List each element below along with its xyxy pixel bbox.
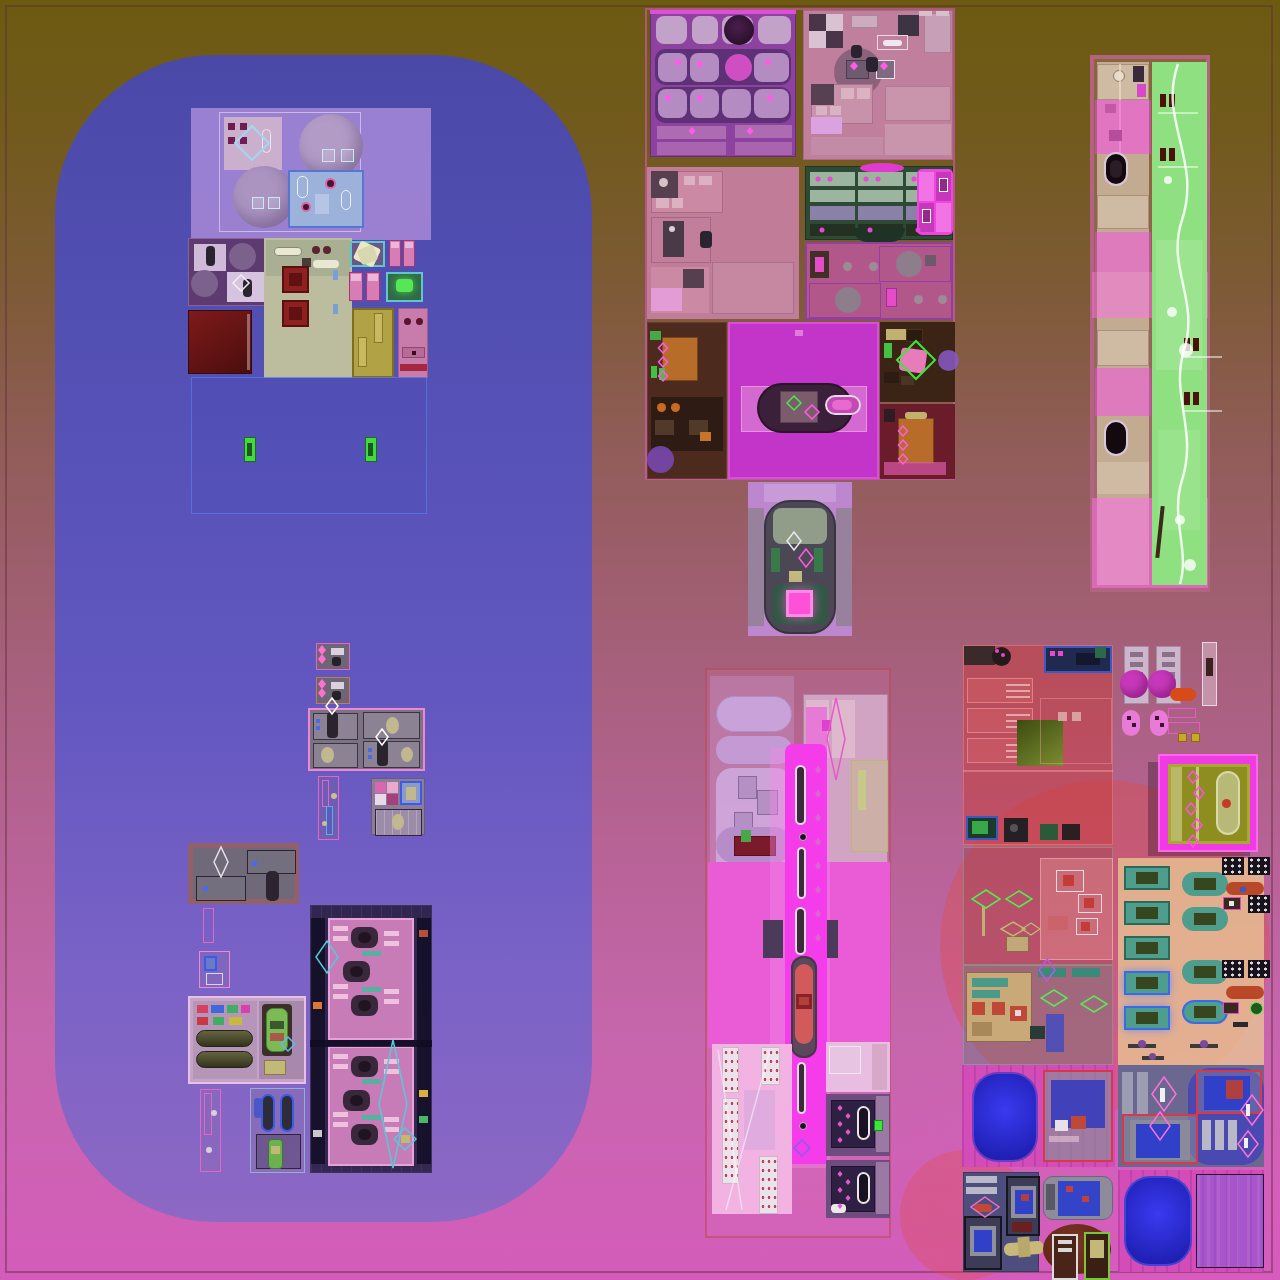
blue-runner: [1046, 1014, 1064, 1052]
locker-slot[interactable]: [280, 1094, 294, 1132]
blue-chip: [333, 270, 338, 280]
stall-table-pad: [358, 1061, 371, 1072]
console-oval: [857, 1172, 870, 1204]
table-dot: [240, 137, 247, 144]
teal-bar: [362, 1115, 381, 1120]
tub-table[interactable]: [780, 391, 818, 423]
blue-pool[interactable]: [1124, 1176, 1192, 1266]
dresser-bar: [358, 337, 367, 367]
counter-box: [816, 106, 827, 115]
sim-figure[interactable]: [327, 712, 338, 738]
red-module: [1226, 1080, 1243, 1099]
green-chip: [874, 1120, 883, 1131]
pool-wall: [1171, 767, 1182, 841]
dot-rack: [1248, 960, 1270, 978]
counter-pill: [313, 260, 339, 268]
counter-box: [857, 88, 870, 99]
table-dot: [240, 123, 247, 130]
shelf-bar: [735, 125, 792, 138]
lane-slot: [795, 765, 806, 825]
color-chip: [213, 1017, 224, 1025]
dark-item: [884, 409, 895, 422]
dot-rack: [1248, 857, 1270, 875]
chevron-bar: [333, 1054, 348, 1059]
red-chip: [1021, 1194, 1029, 1201]
magenta-chip: [822, 720, 831, 731]
white-button: [831, 1204, 846, 1213]
floor-lamp[interactable]: [869, 262, 878, 271]
bench-center: [1136, 977, 1158, 989]
module-knob: [659, 178, 668, 187]
blue-rug: [1058, 1181, 1100, 1216]
dark-module: [906, 329, 923, 342]
stove-burner: [289, 307, 302, 320]
cutlery-oval: [262, 129, 271, 153]
sim-figure[interactable]: [851, 45, 862, 58]
teal-chip: [1095, 647, 1106, 658]
plant-box: [650, 331, 661, 340]
seat-dot: [1127, 716, 1131, 720]
fixture-oval: [297, 176, 308, 198]
khaki-pad: [789, 571, 802, 582]
bench-center: [1194, 1006, 1216, 1018]
floor-lamp[interactable]: [843, 262, 852, 271]
drawer-slot: [1162, 652, 1175, 657]
pale-pill: [1215, 1120, 1224, 1150]
bench-center: [1194, 913, 1216, 925]
seat-dot: [1155, 716, 1159, 720]
red-module: [1071, 1116, 1086, 1129]
drawer-slot: [1130, 652, 1143, 657]
cabinet-cell[interactable]: [658, 53, 687, 82]
toilet-seat: [1110, 160, 1122, 178]
bottle-dark: [1169, 94, 1175, 107]
lane-dot: [799, 1122, 807, 1130]
seat-dot: [1132, 723, 1136, 727]
red-pill-s: [974, 1204, 992, 1212]
chevron-bar: [384, 1059, 399, 1064]
shelf-bar: [322, 780, 329, 807]
red-module: [1084, 898, 1094, 908]
nook-box: [1072, 712, 1081, 721]
blue-chip: [368, 748, 372, 752]
hairline: [1158, 112, 1198, 114]
white-pill: [883, 40, 902, 46]
pale-bar: [1137, 1072, 1148, 1114]
sim-figure[interactable]: [206, 246, 215, 266]
green-glow-blob: [396, 279, 413, 292]
bottle-dark: [1160, 94, 1166, 107]
tv-unit[interactable]: [898, 15, 919, 36]
pink-bed-small[interactable]: [899, 347, 928, 373]
counter-bar[interactable]: [858, 206, 903, 220]
pool-lane-line: [1196, 767, 1199, 841]
red-chip: [1066, 1186, 1073, 1192]
car-stripe: [270, 1033, 284, 1041]
capsule-booth[interactable]: [716, 696, 792, 732]
floor-lamp[interactable]: [914, 295, 923, 304]
nook-wall: [836, 508, 852, 626]
bottle-dark: [1184, 338, 1190, 351]
nook-box: [1058, 712, 1067, 721]
sink-semicircle: [853, 228, 905, 242]
sim-figure[interactable]: [332, 657, 341, 666]
sim-figure[interactable]: [700, 231, 712, 248]
dot-rack: [1248, 895, 1270, 913]
group-table[interactable]: [313, 743, 358, 768]
color-chip: [700, 432, 711, 441]
cabinet-cell[interactable]: [754, 89, 789, 118]
red-module: [992, 1002, 1005, 1015]
pill-dot: [1240, 887, 1246, 892]
shelf-bar-blue: [326, 806, 333, 835]
chevron-bar: [333, 994, 348, 999]
green-rail: [814, 548, 823, 572]
counter-bar-dark[interactable]: [810, 224, 855, 236]
bottle: [884, 343, 892, 358]
glow-square[interactable]: [786, 590, 813, 617]
chip-strip: [1049, 1136, 1079, 1142]
dresser-orange[interactable]: [898, 418, 934, 464]
pouf[interactable]: [938, 350, 959, 371]
table-dot: [228, 137, 235, 144]
bottle-dark: [1193, 392, 1199, 405]
white-unit[interactable]: [829, 1046, 861, 1074]
color-chip: [419, 930, 428, 937]
slot-column: [1046, 1184, 1055, 1210]
counter-bar[interactable]: [810, 172, 855, 186]
sim-figure[interactable]: [243, 279, 252, 297]
chevron-bar: [384, 1117, 399, 1122]
chip-row: [1048, 916, 1068, 930]
chevron-bar: [333, 1122, 348, 1127]
drawer-knob: [412, 351, 416, 355]
console-module: [655, 420, 674, 435]
red-module: [1063, 875, 1074, 886]
framed-module: [939, 178, 948, 192]
wall-shelf: [851, 15, 878, 28]
outline-bar: [1168, 708, 1196, 718]
cabinet-cell[interactable]: [690, 89, 719, 118]
mosaic-tile: [375, 782, 386, 793]
laundry-mat: [744, 1090, 775, 1150]
potting-table[interactable]: [1006, 936, 1029, 952]
color-chip: [227, 1005, 238, 1013]
counter-box: [830, 106, 841, 115]
checker-tile: [826, 31, 843, 48]
yellow-chip: [1191, 733, 1200, 742]
color-chip: [197, 1017, 208, 1025]
sim-figure[interactable]: [866, 57, 878, 72]
teal-bar: [362, 987, 381, 992]
arcade-bar: [1058, 1240, 1072, 1244]
blue-pool[interactable]: [972, 1072, 1038, 1162]
magenta-overlay: [1095, 100, 1151, 154]
magenta-slot: [815, 257, 824, 272]
bench-slot: [368, 443, 373, 456]
hatch-rack: [1006, 682, 1030, 698]
white-pill-s: [1244, 1138, 1248, 1148]
cabinet-cell[interactable]: [690, 53, 719, 82]
pink-seat-oval[interactable]: [1122, 710, 1140, 736]
cabinet-cell[interactable]: [656, 16, 687, 44]
dark-unit[interactable]: [1062, 824, 1080, 840]
chevron-bar: [384, 1127, 399, 1132]
arrow-chip: [1233, 1022, 1248, 1027]
teal-bar: [972, 978, 1008, 987]
stall-table-pad: [358, 1129, 371, 1140]
arcade-bar: [1058, 1248, 1072, 1252]
locker-slot[interactable]: [261, 1094, 275, 1132]
white-pill-s: [1160, 1088, 1165, 1102]
translucent-deck: [1196, 1174, 1264, 1268]
blue-chip: [203, 886, 208, 891]
round-table[interactable]: [299, 114, 363, 178]
fixture-dot[interactable]: [301, 202, 311, 212]
chair[interactable]: [268, 197, 280, 209]
cabinet-cell[interactable]: [754, 53, 789, 82]
loom-dot: [211, 1110, 217, 1116]
toilet[interactable]: [1104, 420, 1128, 456]
side-table[interactable]: [264, 1060, 286, 1075]
marker-target: [401, 1135, 410, 1143]
car-green[interactable]: [266, 1008, 288, 1052]
shelf-bar: [657, 142, 726, 155]
chair[interactable]: [322, 149, 335, 162]
chair[interactable]: [252, 197, 264, 209]
bottle-dark: [1184, 392, 1190, 405]
tub-slab[interactable]: [196, 1051, 253, 1068]
cabinet-cell[interactable]: [758, 16, 791, 44]
car-window: [271, 1146, 280, 1154]
seat-square: [925, 255, 936, 266]
blue-chip: [316, 719, 320, 723]
pink-seat-oval[interactable]: [1150, 710, 1168, 736]
open-floor: [885, 124, 951, 155]
stall-table-pad: [350, 1095, 363, 1106]
corner-module: [683, 269, 704, 288]
loom-dot: [206, 1147, 212, 1153]
cabinet-cell[interactable]: [658, 89, 687, 118]
game-overhead-map: [0, 0, 1280, 1280]
chevron-bar: [384, 931, 399, 936]
shelf-dot: [331, 793, 337, 799]
chevron-bar: [384, 999, 399, 1004]
burner-circle[interactable]: [992, 647, 1011, 666]
lane-slot: [797, 847, 806, 899]
magenta-frame-box: [1223, 1002, 1239, 1014]
color-chip: [211, 1005, 224, 1013]
tall-cabinet[interactable]: [832, 700, 855, 758]
table-dot: [228, 123, 235, 130]
blue-chip: [368, 755, 372, 759]
magenta-dot: [1058, 651, 1063, 656]
stall-table-pad: [358, 1000, 371, 1011]
counter-pill: [274, 247, 302, 256]
nook-wall: [748, 508, 764, 626]
dark-red-mat: [1012, 1222, 1032, 1232]
green-unit[interactable]: [1040, 824, 1058, 840]
patio-outline: [191, 377, 427, 514]
round-table-small[interactable]: [835, 287, 861, 313]
counter-box: [841, 88, 854, 99]
framed-seat[interactable]: [876, 60, 895, 79]
dark-item: [1030, 1026, 1045, 1039]
khaki-pill: [905, 412, 927, 419]
sim-figure[interactable]: [377, 740, 388, 766]
color-chip: [229, 1017, 242, 1025]
cabinet-cell-pink: [919, 172, 934, 201]
bench-center: [1194, 966, 1216, 978]
cabinet-cell[interactable]: [692, 16, 718, 44]
chevron-bar: [333, 1112, 348, 1117]
bottle-dark: [1206, 658, 1213, 676]
lane-slot: [797, 1062, 806, 1114]
blue-rug: [974, 1230, 992, 1252]
color-chip: [241, 1005, 250, 1013]
pink-runner: [884, 462, 946, 475]
green-ring: [1250, 1002, 1263, 1015]
chair[interactable]: [341, 149, 354, 162]
pale-bar-h: [966, 1187, 997, 1194]
ladder-table[interactable]: [759, 1156, 778, 1214]
tall-cabinet[interactable]: [924, 13, 951, 53]
dresser-orange[interactable]: [662, 337, 698, 381]
open-floor: [811, 137, 883, 155]
counter-box: [684, 176, 695, 185]
dresser-dot: [404, 318, 411, 325]
bottle-dark: [1193, 338, 1199, 351]
dot-rack: [1222, 857, 1244, 875]
stall-table-pad: [358, 932, 371, 943]
knob-orange: [657, 403, 666, 412]
dumbbell-dot: [1149, 1053, 1156, 1060]
counter-bar[interactable]: [810, 190, 855, 202]
dot-rack: [1222, 960, 1244, 978]
stove-black[interactable]: [964, 646, 995, 665]
red-module: [972, 1002, 985, 1015]
round-table-small[interactable]: [191, 270, 218, 297]
car-green[interactable]: [268, 1139, 283, 1169]
chevron-bar: [333, 1064, 348, 1069]
table-bar: [331, 682, 344, 689]
appliance-knob: [1010, 824, 1018, 832]
kitchen-nook: [1040, 698, 1112, 764]
pale-bar-h: [966, 1176, 997, 1183]
fixture-pad: [315, 194, 329, 214]
red-chip: [1082, 1196, 1089, 1202]
round-table[interactable]: [233, 166, 295, 228]
dresser-bar: [374, 313, 383, 343]
cabinet-cell[interactable]: [722, 89, 751, 118]
lawn-patch: [1158, 430, 1200, 530]
lane-dot: [799, 833, 807, 841]
round-table-small[interactable]: [896, 251, 922, 277]
arcade-screen: [1090, 1240, 1104, 1258]
bench-center: [1194, 878, 1216, 890]
counter-box: [656, 198, 669, 208]
red-bench-pill[interactable]: [1226, 986, 1264, 999]
fixture-dot[interactable]: [325, 178, 336, 189]
chevron-bar: [333, 926, 348, 931]
tan-module: [972, 1022, 992, 1036]
chevron-bar: [384, 1069, 399, 1074]
bed-pillow: [391, 242, 399, 248]
fixture-oval: [341, 190, 351, 210]
teal-bar: [362, 1079, 381, 1084]
bed-pillow: [405, 242, 413, 248]
lounge-seat[interactable]: [738, 776, 757, 799]
fridge-dot: [669, 226, 675, 232]
sim-figure[interactable]: [332, 691, 341, 700]
rug-edge-bar: [247, 314, 250, 370]
red-module: [1081, 922, 1090, 931]
bottle-dark: [1169, 148, 1175, 161]
counter-bar[interactable]: [858, 190, 903, 202]
tub-slab[interactable]: [196, 1030, 253, 1047]
pink-box: [811, 117, 842, 134]
wall-label: [936, 11, 949, 16]
bench-slot: [247, 443, 252, 456]
counter-bar[interactable]: [810, 206, 855, 220]
ladder-table[interactable]: [722, 1047, 739, 1093]
stove-burner: [289, 273, 302, 286]
car-stripe: [270, 1021, 284, 1029]
side-strip: [872, 1044, 887, 1090]
fixture-row: [1097, 330, 1149, 366]
plant-box: [741, 830, 751, 842]
pink-box: [651, 288, 682, 311]
bed-head: [773, 508, 827, 544]
red-pill: [1170, 688, 1196, 701]
dumbbell-dot: [1138, 1040, 1146, 1048]
checker-tile: [809, 31, 826, 48]
blue-module: [204, 956, 217, 971]
plate-oval: [401, 747, 413, 762]
khaki-bar: [886, 329, 907, 340]
glider-wing: [1017, 1237, 1030, 1258]
pale-pill: [1228, 1120, 1237, 1150]
plate-oval: [392, 814, 404, 830]
table-bar: [331, 648, 344, 655]
pale-bar: [1122, 1072, 1133, 1114]
magenta-overlay: [1095, 368, 1151, 416]
white-pill-s: [1246, 1104, 1250, 1116]
dark-fixture[interactable]: [1133, 66, 1144, 82]
dresser-strip: [400, 364, 427, 371]
counter-bar[interactable]: [858, 172, 903, 186]
shelf-bar: [735, 142, 792, 155]
plate-oval: [321, 747, 334, 763]
counter-dot: [312, 246, 320, 254]
round-table-small[interactable]: [229, 243, 256, 270]
magenta-stool[interactable]: [1120, 670, 1148, 698]
floor-lamp[interactable]: [938, 295, 947, 304]
counter-box: [672, 198, 683, 208]
blue-rug: [1136, 1124, 1180, 1158]
ladder-table[interactable]: [761, 1047, 780, 1085]
teal-bar: [1038, 968, 1066, 977]
ladder-table[interactable]: [722, 1098, 739, 1184]
checker-tile: [826, 14, 843, 31]
green-rail: [771, 548, 780, 572]
drawer-slot: [1162, 662, 1175, 667]
pouf[interactable]: [647, 446, 674, 473]
floor-sub: [712, 262, 794, 314]
seat-dot: [1160, 723, 1164, 727]
blue-chip: [252, 861, 257, 866]
sim-figure[interactable]: [266, 871, 279, 901]
